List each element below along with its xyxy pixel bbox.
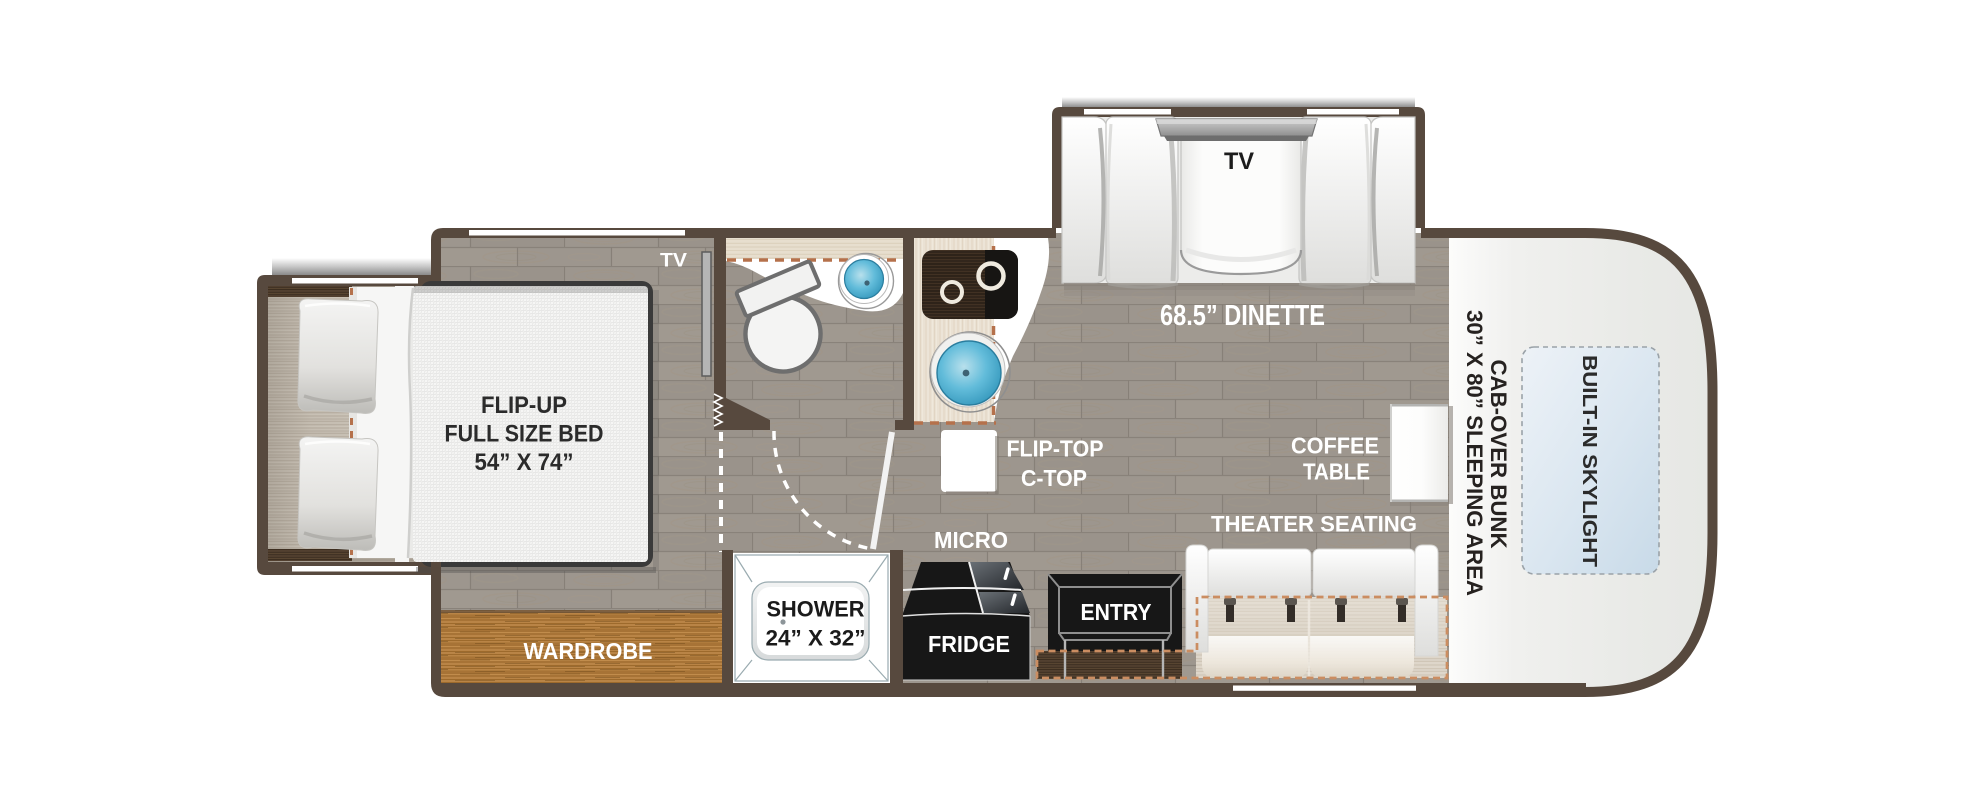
svg-text:MICRO: MICRO — [934, 527, 1008, 553]
svg-text:FLIP-TOP: FLIP-TOP — [1007, 436, 1104, 462]
svg-text:THEATER SEATING: THEATER SEATING — [1211, 512, 1417, 537]
svg-text:30” X 80” SLEEPING AREA: 30” X 80” SLEEPING AREA — [1462, 310, 1487, 596]
svg-text:ENTRY: ENTRY — [1081, 599, 1152, 625]
svg-text:68.5” DINETTE: 68.5” DINETTE — [1160, 300, 1325, 332]
svg-text:FLIP-UP: FLIP-UP — [481, 392, 567, 419]
svg-text:BUILT-IN SKYLIGHT: BUILT-IN SKYLIGHT — [1578, 355, 1600, 567]
svg-text:FRIDGE: FRIDGE — [928, 631, 1010, 657]
svg-text:WARDROBE: WARDROBE — [524, 638, 653, 664]
svg-text:COFFEE: COFFEE — [1291, 433, 1379, 459]
svg-text:TV: TV — [660, 250, 687, 272]
svg-text:CAB-OVER BUNK: CAB-OVER BUNK — [1486, 360, 1511, 549]
svg-text:FULL SIZE BED: FULL SIZE BED — [445, 421, 604, 448]
svg-text:24” X 32”: 24” X 32” — [766, 626, 866, 651]
svg-text:C-TOP: C-TOP — [1021, 465, 1087, 491]
svg-text:TV: TV — [1224, 148, 1254, 175]
svg-text:TABLE: TABLE — [1303, 459, 1370, 485]
svg-text:54” X 74”: 54” X 74” — [475, 449, 574, 476]
svg-text:SHOWER: SHOWER — [767, 597, 865, 622]
